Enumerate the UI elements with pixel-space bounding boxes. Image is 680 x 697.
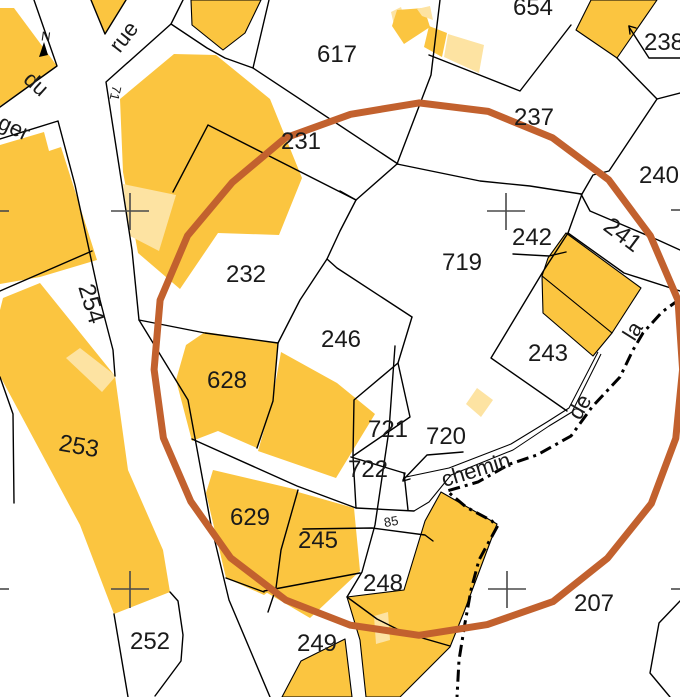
svg-text:240: 240: [639, 162, 679, 189]
svg-text:617: 617: [317, 41, 357, 68]
svg-text:721: 721: [368, 416, 408, 443]
svg-text:246: 246: [321, 326, 361, 353]
svg-text:628: 628: [207, 367, 247, 394]
svg-text:237: 237: [514, 104, 554, 131]
svg-text:722: 722: [348, 456, 388, 483]
svg-text:249: 249: [297, 630, 337, 657]
svg-text:238: 238: [644, 29, 680, 56]
svg-text:654: 654: [513, 0, 553, 21]
svg-text:245: 245: [298, 527, 338, 554]
svg-text:207: 207: [574, 590, 614, 617]
svg-text:248: 248: [363, 570, 403, 597]
svg-text:629: 629: [230, 504, 270, 531]
svg-text:719: 719: [442, 249, 482, 276]
svg-text:242: 242: [512, 224, 552, 251]
svg-text:252: 252: [130, 628, 170, 655]
svg-text:85: 85: [383, 513, 400, 530]
svg-text:231: 231: [281, 128, 321, 155]
svg-text:720: 720: [426, 423, 466, 450]
svg-text:243: 243: [528, 340, 568, 367]
svg-text:232: 232: [226, 261, 266, 288]
